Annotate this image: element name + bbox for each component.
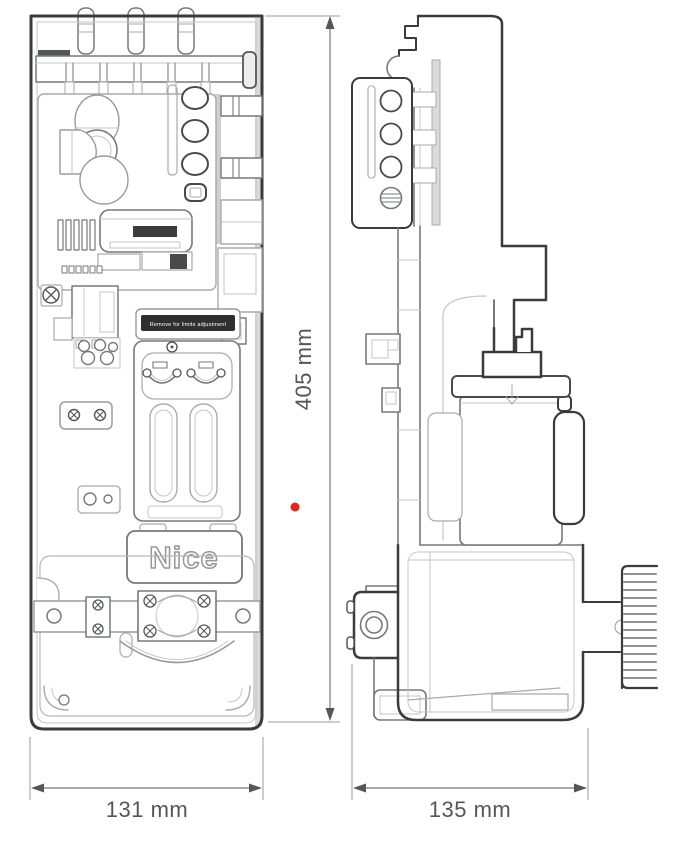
terminal-screws-cluster [74, 338, 120, 368]
front-view: Remove for limits adjustment [31, 8, 262, 729]
dimension-side-width-label: 135 mm [429, 797, 511, 822]
brand-plate: Nice [127, 524, 242, 583]
pinion-gear [622, 566, 657, 688]
terminal-strip [36, 50, 256, 94]
technical-drawing-page: Remove for limits adjustment [0, 0, 682, 841]
dimension-side-width: 135 mm [352, 664, 588, 822]
mount-tabs [366, 334, 400, 610]
screw-plate [60, 402, 112, 429]
dimension-height-label: 405 mm [291, 328, 316, 410]
brand-logo: Nice [149, 540, 218, 575]
mount-column [398, 226, 420, 545]
capacitor-terminal-box [483, 352, 541, 377]
side-view [347, 16, 657, 720]
warning-label-text: Remove for limits adjustment [150, 322, 227, 328]
dimension-front-width: 131 mm [30, 737, 263, 822]
dimension-front-width-label: 131 mm [106, 797, 188, 822]
output-shaft [583, 602, 622, 652]
tower-left-steps [399, 16, 418, 56]
heatsink-fins [58, 220, 95, 250]
motor-assembly [428, 328, 584, 545]
warning-label: Remove for limits adjustment [136, 309, 240, 339]
limit-adjust-panel [134, 341, 240, 521]
gearmotor-dimension-drawing: Remove for limits adjustment [0, 0, 682, 841]
mount-bracket [347, 592, 398, 658]
red-marker-dot [291, 503, 300, 512]
side-buttons-panel [352, 78, 412, 228]
lower-screw-plate [78, 486, 120, 513]
dimension-height: 405 mm [265, 16, 340, 722]
corner-screw [41, 285, 62, 306]
display-module [100, 210, 192, 252]
transformer-block [54, 286, 118, 340]
